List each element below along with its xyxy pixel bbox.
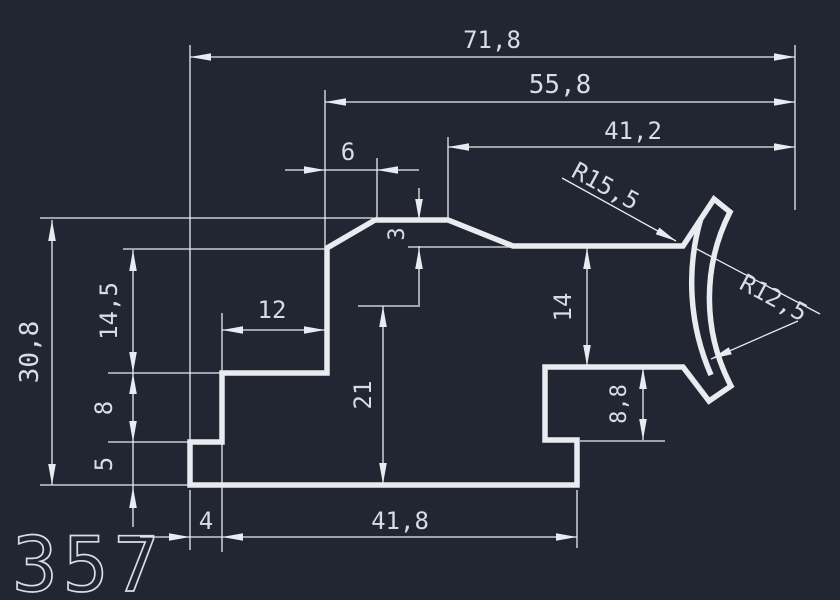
dimension-label-71-8: 71,8 [463,26,521,54]
dimension-label-8: 8 [90,401,118,415]
dimension-label-55-8: 55,8 [529,70,592,100]
dimension-label-41-2: 41,2 [604,117,662,145]
dimension-label-14-5: 14,5 [95,282,123,340]
dimension-label-4: 4 [199,507,213,535]
dimension-label-21: 21 [349,381,377,410]
dimension-label-14: 14 [549,293,577,322]
dimension-label-8-8: 8,8 [607,384,632,424]
dimension-label-12: 12 [258,296,287,324]
dimension-label-41-8: 41,8 [371,507,429,535]
dimension-label-3: 3 [385,227,410,240]
dimension-label-30-8: 30,8 [15,321,45,384]
dimension-label-6: 6 [341,138,355,166]
drawing-number-label: 357 [12,520,164,600]
technical-drawing: 71,855,841,263R15,5R12,530,814,585122114… [0,0,840,600]
cad-viewport: 71,855,841,263R15,5R12,530,814,585122114… [0,0,840,600]
dimension-label-5: 5 [90,457,118,471]
